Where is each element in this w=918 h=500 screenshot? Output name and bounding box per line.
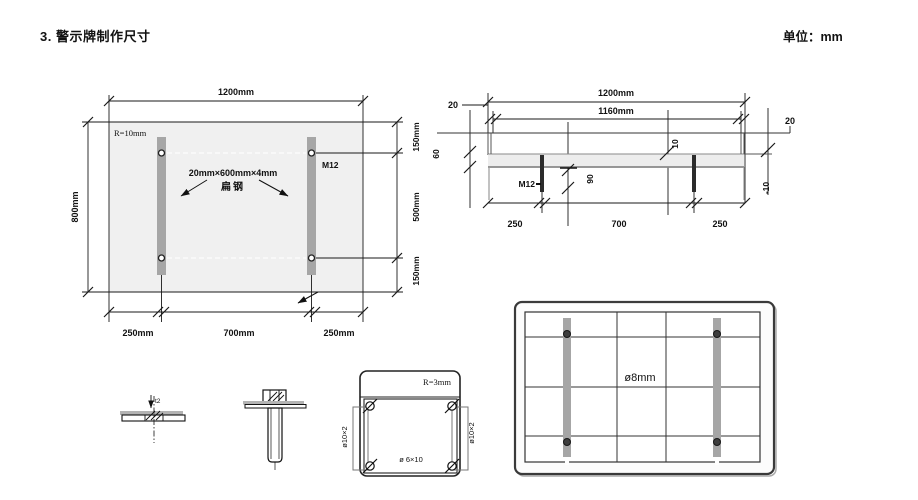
back-steel-bar-right <box>713 318 721 457</box>
section-bolt-label: M12 <box>518 179 535 189</box>
front-dim-right-top: 150mm <box>411 122 421 152</box>
bracket-slot-left-label: ø10×2 <box>340 426 349 447</box>
bar-notch-right <box>715 458 719 465</box>
sign-panel <box>109 122 363 292</box>
technical-drawing: 1200mm 800mm R=10mm 20mm×600mm×4mm 扁钢 M1… <box>0 0 918 500</box>
section-dim-inner-width: 1160mm <box>598 106 634 116</box>
front-corner-radius: R=10mm <box>114 128 147 138</box>
back-hole-label: ø8mm <box>624 372 655 384</box>
front-dim-height: 800mm <box>70 191 80 222</box>
detail-bracket: R=3mm ø 6×10 ø10×2 ø10×2 <box>340 371 476 476</box>
section-bolt-left <box>540 155 544 192</box>
panel-section-band <box>488 154 744 167</box>
drawing-sheet: 3. 警示牌制作尺寸 单位：mm <box>0 0 918 500</box>
bolt-pad <box>243 401 304 405</box>
bracket-slot-right-label: ø10×2 <box>467 422 476 443</box>
section-dim-offset-top: 10 <box>670 139 680 149</box>
front-dim-bottom-left: 250mm <box>122 328 153 338</box>
thickness-label: t2 <box>155 398 161 405</box>
section-dim-bolt: 90 <box>585 174 595 184</box>
bracket-radius-label: R=3mm <box>423 377 451 387</box>
detail-bolt <box>243 390 306 470</box>
fold-steps <box>488 133 772 154</box>
front-dim-width: 1200mm <box>218 87 254 97</box>
steel-name: 扁钢 <box>221 180 245 193</box>
section-dim-bottom-mid: 700 <box>611 219 626 229</box>
back-view: ø8mm <box>515 302 776 476</box>
section-dim-depth: 60 <box>431 149 441 159</box>
corner-detail-arrow <box>298 292 318 303</box>
front-dim-right-bottom: 150mm <box>411 256 421 286</box>
back-steel-bar-left <box>563 318 571 457</box>
bar-notch-left <box>565 458 569 465</box>
front-dim-right-mid: 500mm <box>411 192 421 222</box>
front-dim-bottom-mid: 700mm <box>223 328 254 338</box>
front-bolt-label: M12 <box>322 160 339 170</box>
front-dim-bottom-right: 250mm <box>323 328 354 338</box>
section-view: 1200mm 1160mm 20 20 60 10 -10 M12 90 250… <box>431 88 795 229</box>
flat-steel-bar-left <box>157 137 166 275</box>
section-dim-bottom-right: 250 <box>712 219 727 229</box>
section-dim-edge-right: 20 <box>785 116 795 126</box>
section-dim-bottom-left: 250 <box>507 219 522 229</box>
front-view: 1200mm 800mm R=10mm 20mm×600mm×4mm 扁钢 M1… <box>70 87 421 338</box>
section-bolt-right <box>692 155 696 192</box>
bolt-shank <box>268 408 282 462</box>
flat-steel-bar-right <box>307 137 316 275</box>
section-dim-edge-left: 20 <box>448 100 458 110</box>
bracket-hole-label: ø 6×10 <box>399 455 423 464</box>
steel-spec: 20mm×600mm×4mm <box>189 168 278 178</box>
section-dim-width: 1200mm <box>598 88 634 98</box>
detail-flat-bar: t2 <box>120 395 185 443</box>
section-dim-offset-right: -10 <box>761 182 771 195</box>
